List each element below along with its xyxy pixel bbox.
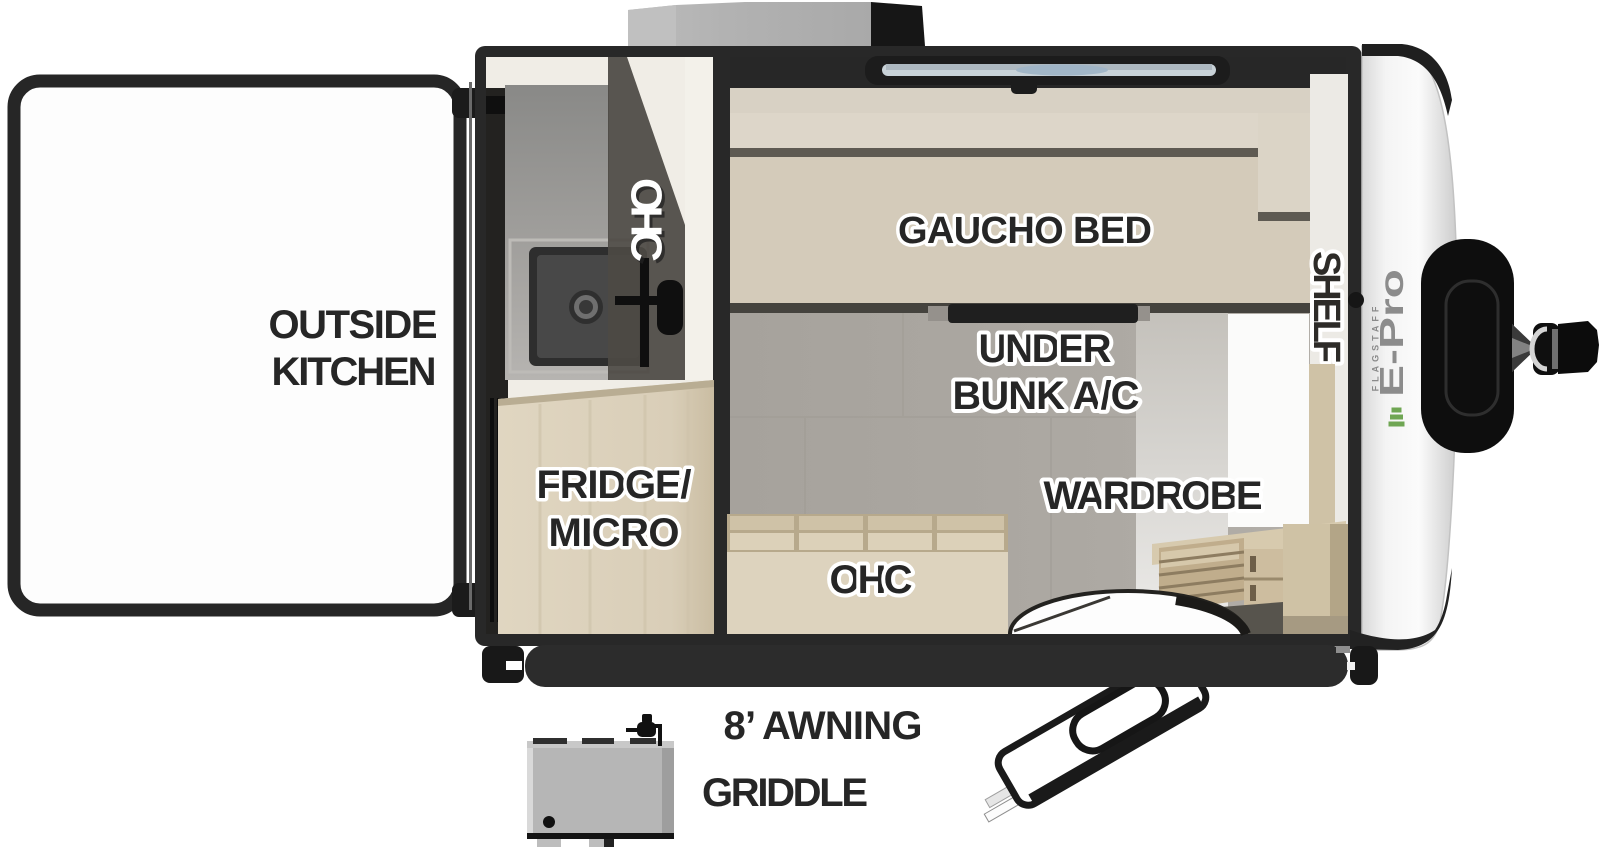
svg-text:OHC: OHC <box>830 558 913 602</box>
svg-text:OUTSIDE: OUTSIDE <box>269 303 438 347</box>
svg-text:GRIDDLE: GRIDDLE <box>702 771 868 815</box>
svg-text:BUNK A/C: BUNK A/C <box>953 374 1140 418</box>
svg-text:FRIDGE/: FRIDGE/ <box>537 463 692 507</box>
svg-text:SHELF: SHELF <box>1305 251 1347 363</box>
svg-text:OHC: OHC <box>622 178 671 262</box>
svg-text:WARDROBE: WARDROBE <box>1044 474 1263 518</box>
svg-text:GAUCHO BED: GAUCHO BED <box>898 210 1152 252</box>
svg-text:8’ AWNING: 8’ AWNING <box>724 704 923 748</box>
svg-text:UNDER: UNDER <box>979 327 1112 371</box>
svg-text:MICRO: MICRO <box>549 511 680 555</box>
svg-text:KITCHEN: KITCHEN <box>272 350 437 394</box>
svg-text:FLAGSTAFF: FLAGSTAFF <box>1371 303 1381 392</box>
